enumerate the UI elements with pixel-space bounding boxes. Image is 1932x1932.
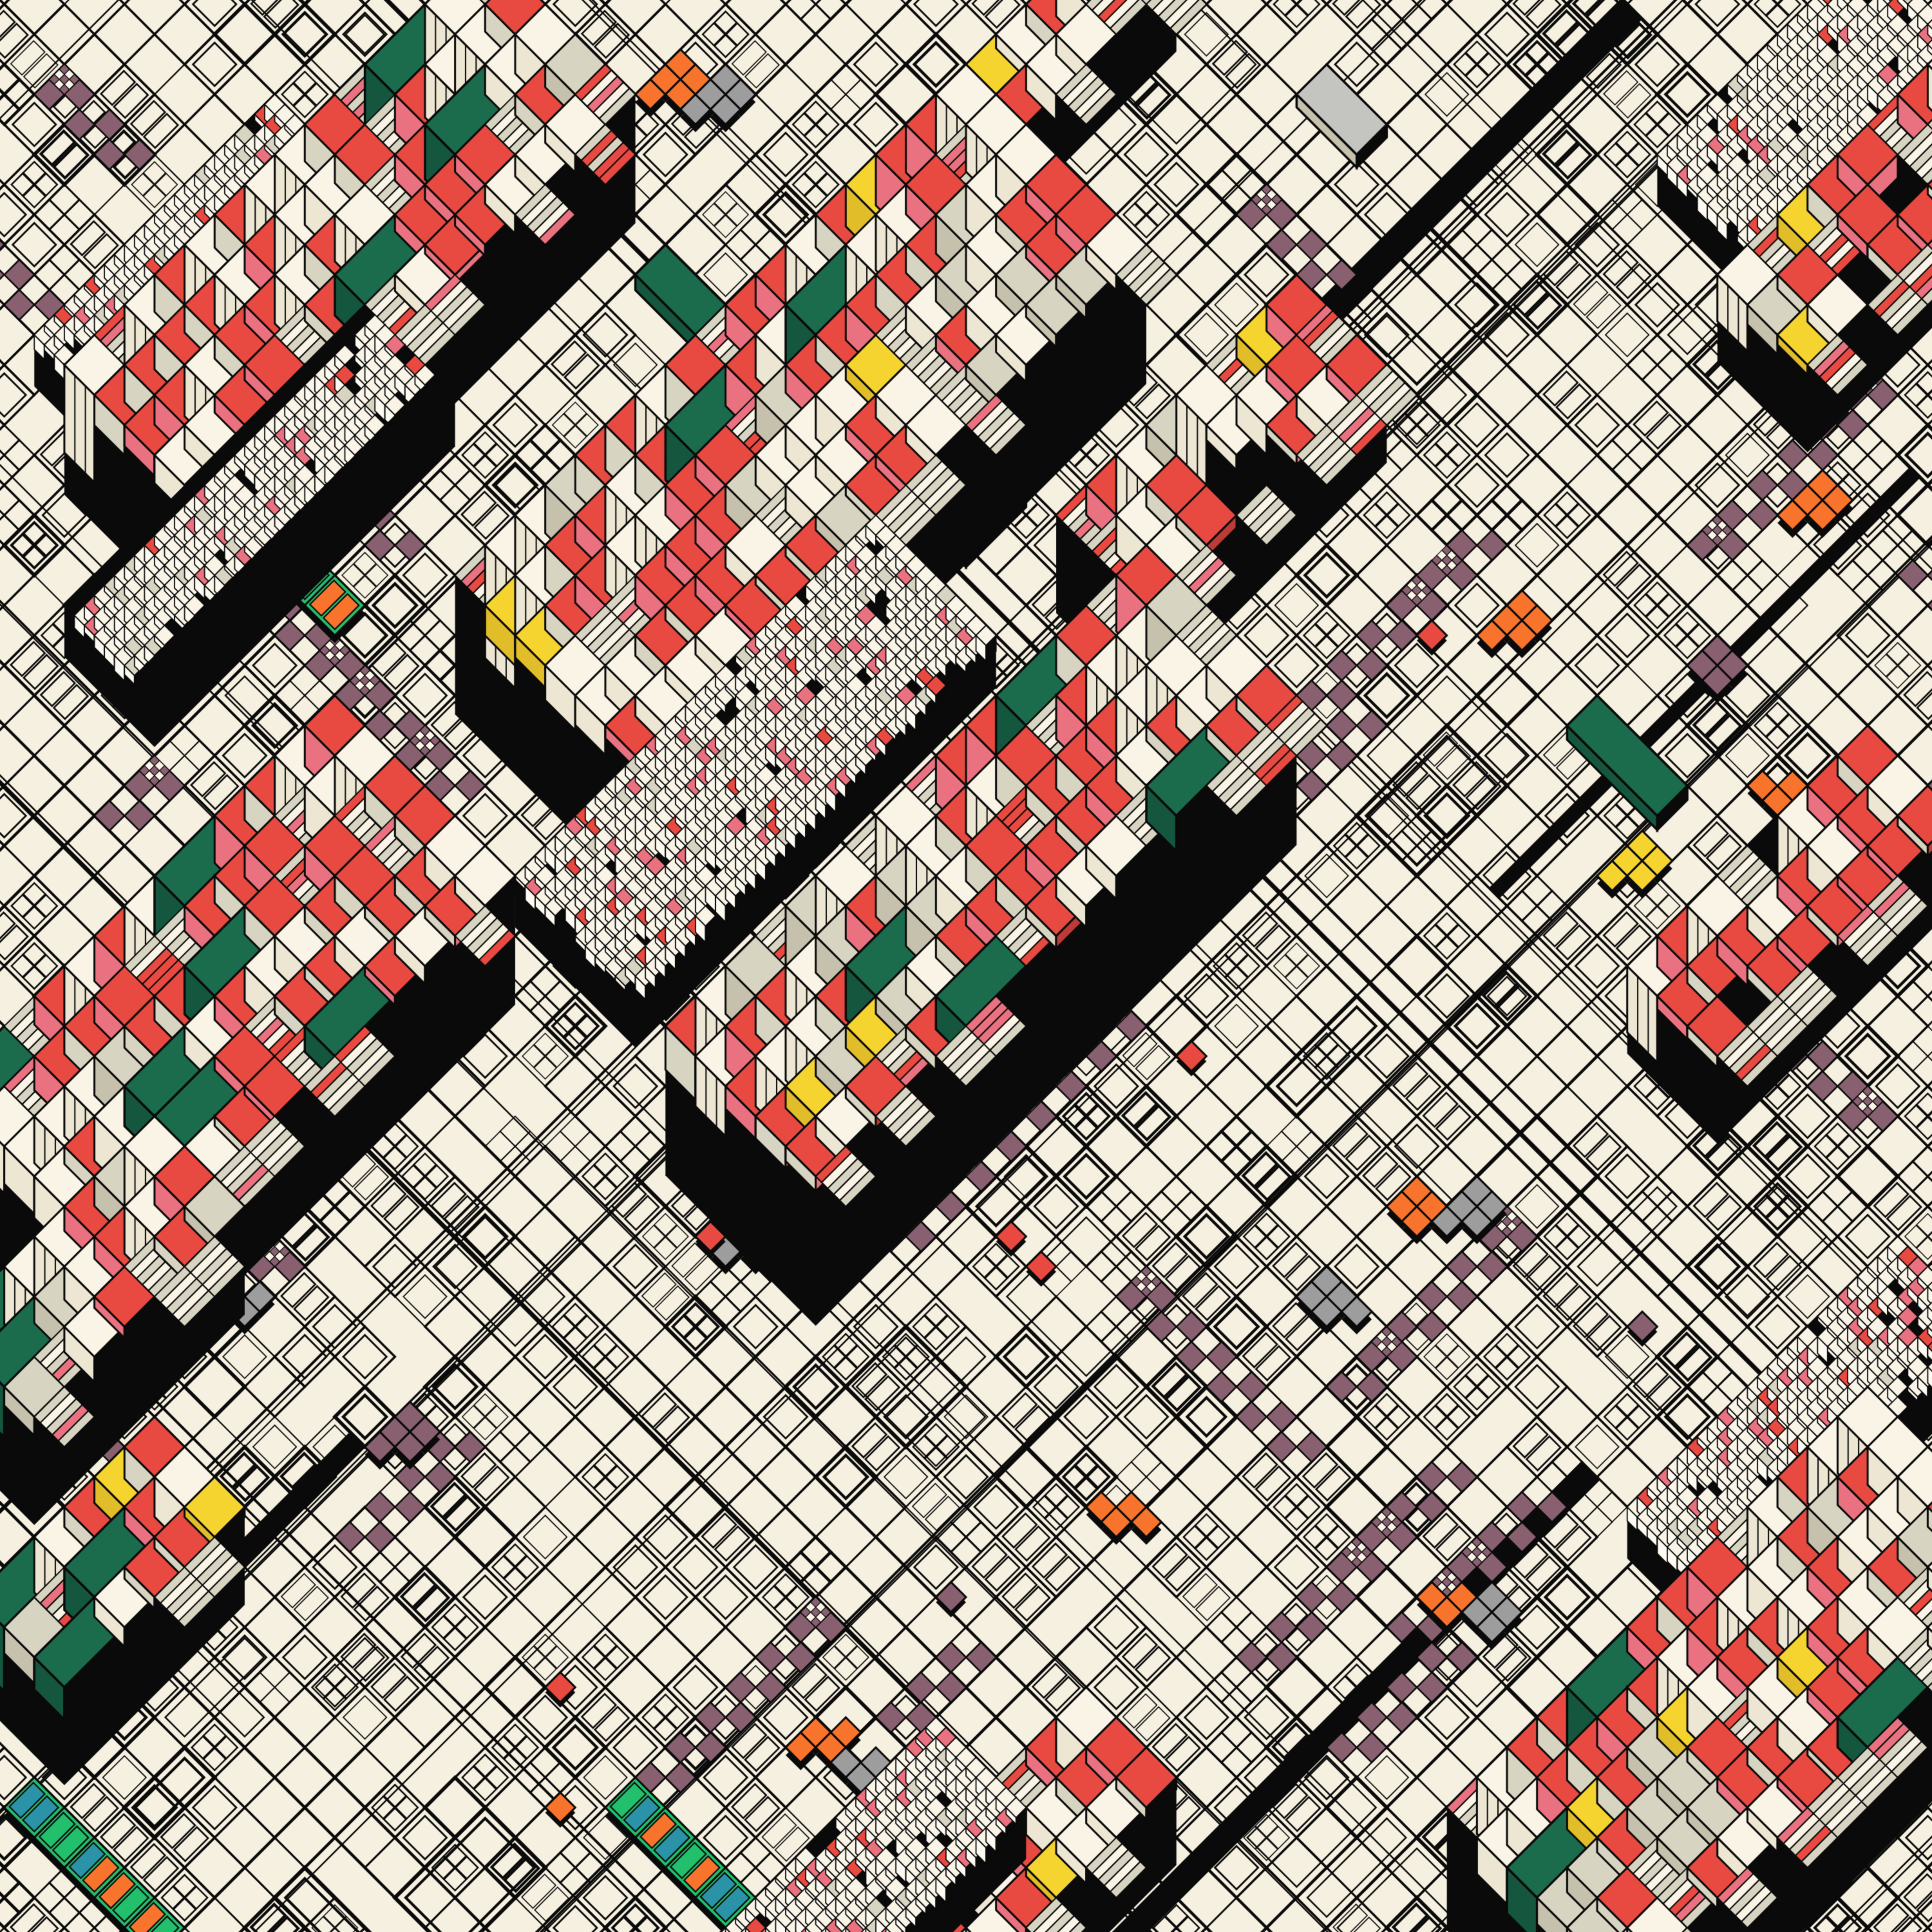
generative-artwork-canvas [0,0,1932,1932]
artwork-frame [0,0,1932,1932]
